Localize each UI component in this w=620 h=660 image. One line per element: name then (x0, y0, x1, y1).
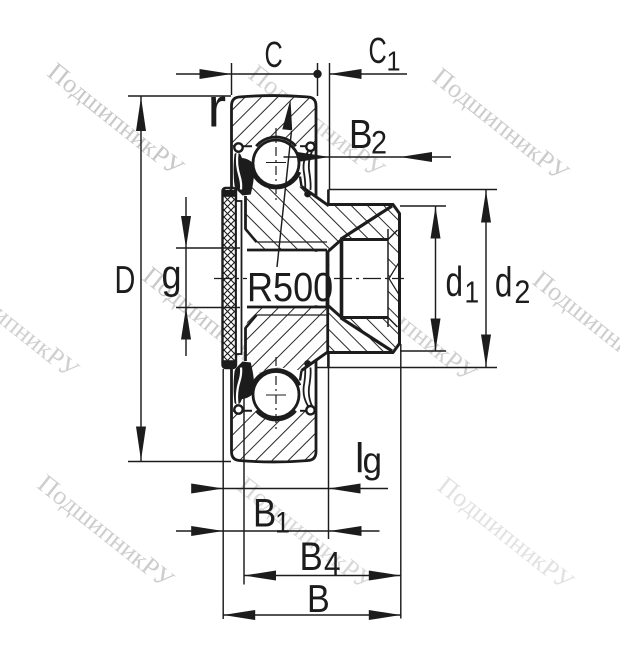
svg-text:r: r (208, 76, 227, 139)
svg-text:1: 1 (465, 276, 480, 310)
svg-text:g: g (162, 252, 182, 298)
svg-text:2: 2 (371, 125, 387, 161)
svg-text:g: g (363, 439, 383, 481)
svg-text:2: 2 (514, 275, 530, 311)
svg-text:d: d (495, 259, 513, 305)
svg-text:d: d (446, 259, 464, 305)
svg-text:C: C (265, 35, 283, 76)
svg-text:D: D (115, 259, 136, 302)
svg-text:R500: R500 (247, 265, 333, 311)
svg-text:B: B (307, 577, 330, 621)
svg-text:1: 1 (275, 506, 290, 540)
svg-text:1: 1 (387, 45, 401, 77)
svg-text:C: C (369, 31, 387, 72)
svg-text:B: B (300, 534, 323, 579)
svg-text:B: B (349, 113, 372, 158)
svg-text:B: B (253, 490, 276, 535)
